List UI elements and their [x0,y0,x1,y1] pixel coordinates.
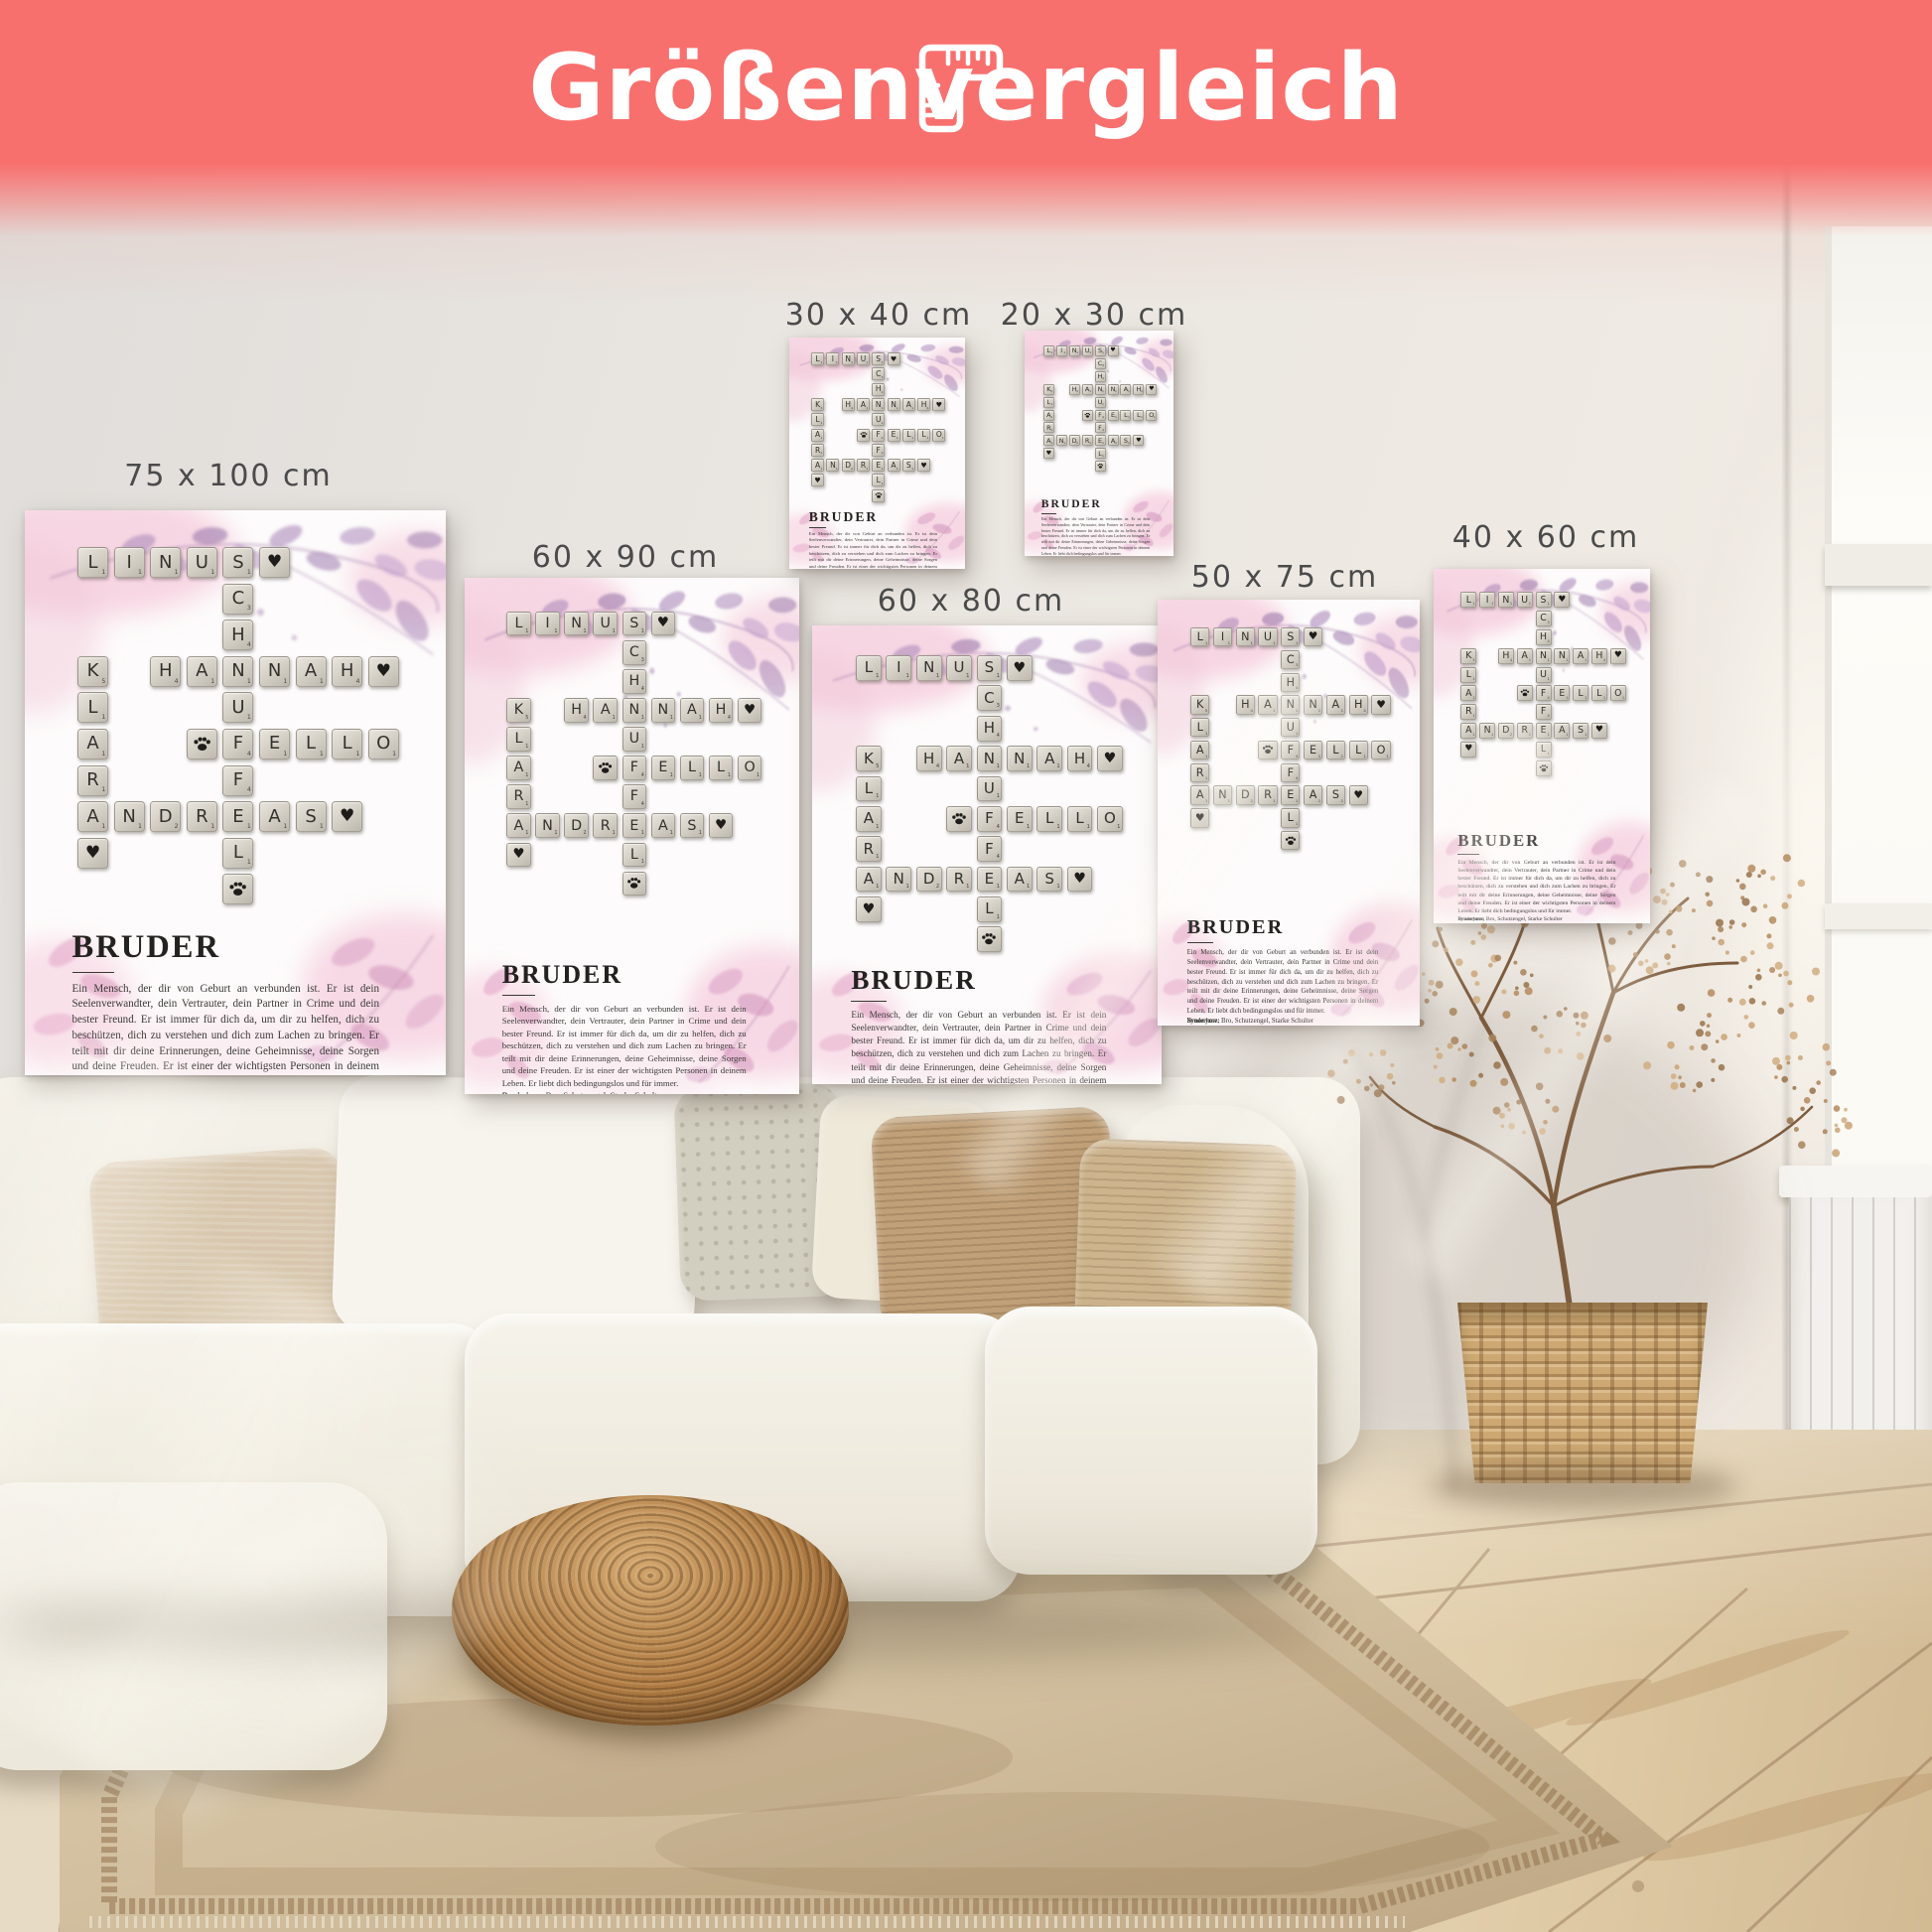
scrabble-tile: O1 [1146,410,1157,421]
scrabble-tile: S1 [1281,627,1300,646]
scrabble-tile: N1 [222,656,253,687]
scrabble-tile: S1 [296,801,327,832]
heart-icon: ♥ [85,845,100,862]
tile-letter: N [628,703,639,717]
poster-definition-text: Ein Mensch, der dir von Geburt an verbun… [851,1009,1106,1084]
tile-value: 1 [1115,442,1117,445]
heart-icon: ♥ [1558,596,1566,605]
tile-value: 4 [728,716,731,721]
scrabble-tile: A1 [187,656,217,687]
room-photo: 75 x 100 cm L1I1N1U1S1♥C3H4K5H4A1N1N1A1H… [0,147,1932,1932]
tile-value: 1 [247,570,251,576]
scrabble-tile: N1 [826,459,839,472]
tile-letter: F [1541,707,1546,716]
tile-letter: L [514,732,522,746]
tile-letter: A [1015,872,1025,887]
tile-value: 1 [1510,603,1512,606]
heart-icon: ♥ [863,902,876,916]
scrabble-tile: A1 [1304,785,1322,804]
tile-value: 1 [1472,678,1474,681]
scrabble-tile: ♥ [738,698,762,723]
tile-value: 1 [936,674,939,679]
heart-icon: ♥ [267,554,282,571]
tile-letter: C [1287,654,1295,665]
scrabble-tile: O1 [738,756,762,780]
scrabble-tile: S1 [1036,867,1062,893]
scrabble-tile: ♥ [1371,695,1390,714]
tile-letter: N [231,662,244,680]
heading-rule [1041,513,1056,514]
tile-letter: A [658,819,668,833]
scrabble-tile: E1 [1095,435,1106,446]
tile-value: 4 [1510,659,1512,662]
scrabble-tile: F4 [977,836,1003,862]
tile-letter: L [1466,596,1471,605]
scrabble-tile: L1 [1573,685,1588,701]
scrabble-tile: I1 [1213,627,1232,646]
scrabble-tile: H4 [564,698,589,723]
tile-letter: N [159,554,172,572]
heart-icon: ♥ [1136,438,1141,444]
tile-value: 1 [1318,755,1320,759]
scrabble-tile: N1 [842,352,855,365]
tile-value: 1 [283,752,287,758]
scrabble-tile: A1 [811,459,824,472]
tile-value: 4 [247,642,251,648]
tile-value: 1 [699,773,702,778]
scrabble-tile: U1 [1258,627,1277,646]
tile-letter: H [159,662,173,680]
tile-value: 1 [1566,734,1568,737]
tile-value: 1 [1027,764,1030,769]
tile-letter: A [1196,789,1204,800]
poster-definition-text: Ein Mensch, der dir von Geburt an verbun… [1041,516,1151,556]
tile-letter: I [1060,347,1062,353]
scrabble-tile: E1 [888,429,900,442]
tile-value: 4 [936,764,939,769]
heart-icon: ♥ [920,462,926,469]
scrabble-tile: S1 [1120,435,1131,446]
tile-value: 1 [283,824,287,830]
scrabble-tile: L1 [1281,808,1300,827]
scrabble-tile: A1 [857,398,870,411]
tile-letter: L [922,431,926,439]
scrabble-tile: L1 [902,429,915,442]
heart-icon: ♥ [1046,451,1051,457]
scrabble-tile: A1 [1460,685,1476,701]
heart-icon: ♥ [657,617,669,630]
scrabble-tile: S1 [902,459,915,472]
tile-letter: L [1596,689,1601,698]
tile-value: 1 [1050,403,1052,406]
scrabble-tile: E1 [1554,685,1570,701]
poster-60x90: L1I1N1U1S1♥C3H4K5H4A1N1N1A1H4♥L1U1A1 F4E… [465,578,799,1094]
tile-letter: I [897,660,900,675]
tile-letter: S [1541,596,1547,605]
tile-letter: F [1288,745,1294,756]
tile-value: 4 [882,391,884,394]
scrabble-tile: R1 [946,867,972,893]
poster-definition-text: Ein Mensch, der dir von Geburt an verbun… [502,1003,747,1089]
scrabble-tile: N1 [564,612,589,636]
tile-letter: N [571,617,582,630]
tile-value: 1 [320,824,324,830]
poster-word-block: BRUDEREin Mensch, der dir von Geburt an … [72,931,380,1075]
tile-value: 1 [821,468,823,471]
tile-letter: N [984,752,995,766]
tile-value: 1 [882,422,884,425]
tile-value: 3 [1102,364,1104,367]
tile-letter: S [1044,872,1054,887]
scrabble-tile: C3 [1095,358,1106,369]
paw-icon [981,931,997,947]
scrabble-tile: E1 [1304,741,1322,759]
scrabble-tile: S1 [680,813,705,838]
scrabble-tile: U1 [593,612,618,636]
scrabble-tile: H4 [872,383,885,396]
scrabble-tile: A1 [506,756,531,780]
tile-value: 5 [876,764,879,769]
scrabble-tile: N1 [916,655,942,681]
scrabble-tile: A1 [1573,648,1588,664]
scrabble-tile: O1 [1371,741,1390,759]
tile-value: 1 [821,422,823,425]
poster-20x30: L1I1N1U1S1♥C3H4K5H4A1N1N1A1H4♥L1U1A1 F4E… [1025,331,1173,556]
tile-value: 1 [641,831,644,836]
tile-letter: R [196,808,208,826]
tile-letter: L [906,431,910,439]
tile-letter: L [343,735,352,753]
scrabble-tile: A1 [902,398,915,411]
tile-value: 4 [1548,715,1550,718]
tile-value: 2 [936,885,939,890]
tile-value: 1 [866,361,868,364]
tile-value: 1 [1363,755,1365,759]
scrabble-tile: N1 [1056,435,1067,446]
tile-letter: D [1241,789,1250,800]
scrabble-tile: N1 [535,813,560,838]
tile-letter: C [232,590,245,608]
tile-value: 1 [876,825,879,830]
scrabble-tile: R1 [506,784,531,809]
tile-value: 4 [641,687,644,692]
scrabble-tile: N1 [888,398,900,411]
tile-letter: A [1578,651,1584,660]
tile-value: 1 [1622,697,1624,700]
tile-value: 1 [247,860,251,866]
tile-letter: R [1465,707,1471,716]
tile-letter: D [923,872,935,887]
tile-value: 3 [247,606,251,612]
tile-value: 1 [1128,390,1130,393]
tile-letter: C [876,370,881,378]
tile-letter: K [87,662,99,680]
tile-value: 1 [997,885,1000,890]
scrabble-tile: L1 [1043,345,1054,356]
tile-letter: N [1559,651,1566,660]
tile-letter: R [86,771,99,789]
window-transom-bar [1825,544,1932,586]
scrabble-tile: ♥ [1007,655,1033,681]
tile-letter: N [1218,789,1226,800]
scrabble-tile: ♥ [1591,723,1607,739]
tile-value: 1 [101,787,105,793]
scrabble-tile: N1 [259,656,290,687]
size-label-60x90: 60 x 90 cm [532,540,719,575]
scrabble-tile: O1 [1610,685,1626,701]
scrabble-tile: ♥ [368,656,399,687]
scrabble-tile: L1 [506,727,531,752]
scrabble-tile: L1 [872,474,885,486]
paw-icon [1262,744,1274,756]
scrabble-tile: N1 [886,867,911,893]
tile-value: 1 [1548,678,1550,681]
scrabble-tile: U1 [946,655,972,681]
scrabble-tile: E1 [622,813,647,838]
scrabble-tile: O1 [1097,806,1123,832]
heart-icon: ♥ [1464,745,1472,754]
tile-value: 1 [1089,351,1091,354]
scrabble-tile: N1 [1304,695,1322,714]
tile-letter: D [571,819,582,833]
tile-value: 1 [966,885,969,890]
scrabble-tile: L1 [1460,667,1476,683]
tile-value: 2 [1510,734,1512,737]
scrabble-tile: N1 [150,547,181,578]
scrabble-tile: ♥ [1133,435,1144,446]
tile-letter: A [1264,699,1272,710]
scrabble-tile: L1 [1349,741,1368,759]
scrabble-tile: H4 [1536,629,1552,645]
paw-icon [626,876,641,891]
tile-letter: L [1355,745,1361,756]
tile-value: 1 [641,745,644,750]
scrabble-tile: L1 [1326,741,1345,759]
tile-value: 1 [247,679,251,685]
tile-letter: E [985,872,994,887]
tile-letter: R [1521,726,1527,735]
scrabble-tile [1536,760,1552,776]
tile-value: 2 [175,824,179,830]
scrabble-tile: ♥ [506,843,531,868]
tile-value: 3 [641,658,644,663]
tile-letter: R [601,819,611,833]
tile-value: 1 [1548,734,1550,737]
poster-definition-text: Ein Mensch, der dir von Geburt an verbun… [1457,859,1615,915]
tile-letter: E [629,819,638,833]
tile-letter: A [1332,699,1340,710]
tile-value: 1 [320,679,324,685]
tile-letter: E [892,431,897,439]
tile-letter: L [688,760,696,774]
tile-letter: E [1541,726,1547,735]
tile-letter: U [984,781,995,796]
tile-letter: H [1287,677,1295,688]
tile-letter: S [629,617,638,630]
scrabble-tile: ♥ [77,838,108,869]
tile-letter: N [657,703,668,717]
tile-value: 1 [1102,351,1104,354]
tile-value: 4 [1102,429,1104,432]
tile-letter: N [268,662,281,680]
tile-letter: R [1196,767,1204,778]
tile-value: 1 [1491,603,1493,606]
tile-letter: N [1540,651,1547,660]
scrabble-tile: O1 [368,729,399,759]
tile-letter: N [1287,699,1295,710]
tile-value: 4 [247,752,251,758]
scrabble-tile: H4 [1591,648,1607,664]
tile-letter: A [1465,726,1471,735]
tile-value: 1 [1205,799,1207,803]
tile-letter: R [1264,789,1272,800]
tile-letter: F [1541,689,1546,698]
wicker-pouf [452,1495,849,1725]
scrabble-tile: U1 [872,413,885,426]
heart-icon: ♥ [1595,726,1603,735]
tile-letter: E [1015,811,1024,826]
scrabble-tile: L1 [1190,718,1209,737]
scrabble-tile: A1 [259,801,290,832]
tile-value: 1 [836,468,838,471]
tile-value: 1 [1585,697,1587,700]
tile-letter: L [985,901,993,916]
scrabble-tile: O1 [932,429,945,442]
scrabble-tile: U1 [222,692,253,723]
scrabble-tile: N1 [1536,648,1552,664]
tile-value: 1 [699,716,702,721]
tile-value: 1 [175,570,179,576]
scrabble-tile: C3 [1536,611,1552,626]
tile-value: 4 [1141,390,1143,393]
tile-letter: F [985,842,994,857]
tile-value: 1 [997,794,1000,799]
tile-value: 1 [1063,442,1065,445]
scrabble-tile: L1 [622,843,647,868]
size-label-75x100: 75 x 100 cm [124,459,333,493]
tile-value: 4 [1603,659,1605,662]
tile-value: 1 [670,773,673,778]
tile-value: 1 [138,824,142,830]
scrabble-tile: F4 [222,729,253,759]
tile-letter: F [877,431,881,439]
tile-value: 1 [1115,416,1117,419]
tile-value: 1 [613,716,616,721]
tile-letter: E [1287,789,1294,800]
tile-value: 2 [584,831,587,836]
tile-value: 1 [1087,825,1090,830]
tile-letter: R [864,842,874,857]
tile-value: 1 [641,716,644,721]
tile-letter: E [269,735,280,753]
tile-value: 1 [1318,799,1320,803]
tile-value: 1 [897,437,898,440]
scrabble-tile: H4 [1498,648,1514,664]
tile-letter: F [985,811,994,826]
heart-icon: ♥ [1110,347,1115,353]
tile-value: 1 [911,468,913,471]
scrabble-tile: H4 [916,746,942,771]
scrabble-tile: R1 [187,801,217,832]
scrabble-tile: F4 [622,784,647,809]
tile-value: 1 [1472,734,1474,737]
size-label-20x30: 20 x 30 cm [1001,298,1187,333]
tile-letter: C [984,691,994,706]
tile-letter: N [894,872,904,887]
tile-value: 4 [882,437,884,440]
scrabble-tile: U1 [1517,592,1533,608]
scrabble-tile: N1 [977,746,1003,771]
tile-letter: S [985,660,995,675]
tile-value: 1 [699,831,702,836]
scrabble-tile: N1 [114,801,145,832]
tile-value: 1 [1205,776,1207,780]
tile-value: 1 [882,468,884,471]
scrabble-tile: R1 [856,836,882,862]
tile-value: 4 [1363,709,1365,713]
tile-letter: H [1502,651,1509,660]
tile-value: 1 [247,824,251,830]
tile-value: 1 [210,570,214,576]
tile-letter: A [514,760,524,774]
scrabble-tile: E1 [222,801,253,832]
scrabble-tile: K5 [77,656,108,687]
scrabble-tile: A1 [1326,695,1345,714]
tile-value: 1 [525,773,528,778]
scrabble-tile: S1 [1326,785,1345,804]
tile-letter: U [954,660,965,675]
scrabble-tile: N1 [622,698,647,723]
scrabble-tile: U1 [1082,345,1093,356]
tile-value: 1 [821,452,823,455]
scrabble-tile: F4 [1281,763,1300,782]
tile-value: 1 [821,437,823,440]
tile-value: 1 [911,437,913,440]
tile-letter: H [1241,699,1249,710]
scrabble-tile: I1 [886,655,911,681]
scrabble-tile: H4 [709,698,734,723]
scrabble-tile: N1 [1007,746,1033,771]
tile-letter: R [954,872,964,887]
tile-letter: F [630,760,638,774]
scrabble-tile: E1 [977,867,1003,893]
tile-letter: R [861,462,866,470]
tile-letter: A [864,811,874,826]
scrabble-tile: D2 [1069,435,1080,446]
tile-value: 1 [554,629,557,634]
scrabble-tile: L1 [917,429,930,442]
tile-letter: F [1288,767,1294,778]
scrabble-tile: A1 [811,429,824,442]
size-comparison-mockup: 75 x 100 cm L1I1N1U1S1♥C3H4K5H4A1N1N1A1H… [0,0,1932,1932]
scrabble-tile: A1 [856,867,882,893]
tile-letter: K [815,401,820,409]
tile-value: 1 [1128,416,1130,419]
tile-letter: I [545,617,549,630]
tile-letter: F [233,735,243,753]
tile-value: 1 [613,831,616,836]
scrabble-tile: H4 [1067,746,1093,771]
scrabble-tile: ♥ [1190,808,1209,827]
scrabble-tile: D2 [916,867,942,893]
scrabble-tile: R1 [1190,763,1209,782]
tile-value: 1 [641,629,644,634]
tile-letter: A [891,462,896,470]
tile-value: 1 [997,764,1000,769]
scrabble-tile: L1 [332,729,362,759]
tile-letter: H [1595,651,1602,660]
tile-value: 4 [1548,640,1550,643]
